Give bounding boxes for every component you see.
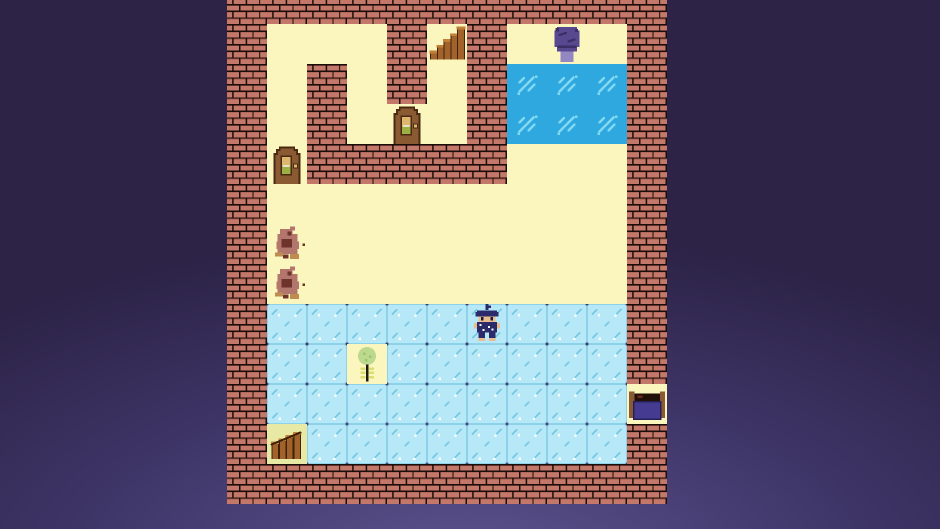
- brick-wall-tile: [467, 0, 507, 24]
- floor-tile: [427, 104, 467, 144]
- brick-wall-tile: [427, 144, 467, 184]
- floor-tile: [307, 24, 347, 64]
- brick-wall-tile: [627, 304, 667, 344]
- brick-wall-tile: [347, 0, 387, 24]
- ice-tile: [547, 384, 587, 424]
- floor-tile: [547, 144, 587, 184]
- ice-tile: [267, 304, 307, 344]
- ice-tile: [347, 304, 387, 344]
- brick-wall-tile: [267, 464, 307, 504]
- brick-wall-tile: [227, 104, 267, 144]
- water-tile: [587, 104, 627, 144]
- brick-wall-tile: [547, 0, 587, 24]
- ice-tile: [387, 384, 427, 424]
- player-character: [467, 304, 507, 344]
- water-tile: [587, 64, 627, 104]
- brick-wall-tile: [427, 464, 467, 504]
- floor-tile: [507, 24, 547, 64]
- brick-wall-tile: [227, 424, 267, 464]
- brick-wall-tile: [627, 0, 667, 24]
- floor-tile: [427, 184, 467, 224]
- brick-wall-tile: [467, 24, 507, 64]
- floor-tile: [347, 24, 387, 64]
- ice-tile: [347, 424, 387, 464]
- floor-tile: [587, 144, 627, 184]
- ice-tile: [587, 384, 627, 424]
- ice-tile: [267, 384, 307, 424]
- floor-tile: [467, 224, 507, 264]
- floor-tile: [547, 224, 587, 264]
- floor-tile: [587, 264, 627, 304]
- brick-wall-tile: [627, 424, 667, 464]
- brick-wall-tile: [227, 0, 267, 24]
- brick-wall-tile: [467, 144, 507, 184]
- ice-tile: [387, 304, 427, 344]
- brick-wall-tile: [587, 0, 627, 24]
- ice-tile: [387, 344, 427, 384]
- ice-tile: [587, 344, 627, 384]
- floor-tile: [347, 224, 387, 264]
- brick-wall-tile: [227, 464, 267, 504]
- ice-tile: [427, 304, 467, 344]
- ice-tile: [467, 384, 507, 424]
- brick-wall-tile: [627, 104, 667, 144]
- floor-tile: [387, 224, 427, 264]
- wooden-staircase: [427, 24, 467, 64]
- ice-tile: [387, 424, 427, 464]
- brick-wall-tile: [627, 64, 667, 104]
- ice-tile: [507, 384, 547, 424]
- brick-wall-tile: [387, 24, 427, 64]
- floor-tile: [507, 184, 547, 224]
- brick-wall-tile: [227, 184, 267, 224]
- ice-tile: [427, 384, 467, 424]
- bed: [627, 384, 667, 424]
- floor-tile: [267, 64, 307, 104]
- floor-tile: [467, 184, 507, 224]
- brick-wall-tile: [507, 0, 547, 24]
- brick-wall-tile: [227, 224, 267, 264]
- brick-wall-tile: [627, 224, 667, 264]
- floor-tile: [267, 184, 307, 224]
- brick-wall-tile: [307, 0, 347, 24]
- ice-tile: [307, 304, 347, 344]
- brick-wall-tile: [507, 464, 547, 504]
- ice-tile: [587, 424, 627, 464]
- floor-tile: [307, 184, 347, 224]
- ice-tile: [547, 304, 587, 344]
- brick-wall-tile: [427, 0, 467, 24]
- floor-tile: [427, 264, 467, 304]
- brick-wall-tile: [307, 464, 347, 504]
- water-tile: [547, 64, 587, 104]
- brick-wall-tile: [467, 464, 507, 504]
- brick-wall-tile: [627, 464, 667, 504]
- floor-tile: [427, 64, 467, 104]
- arched-door-upper: [387, 104, 427, 144]
- floor-tile: [307, 224, 347, 264]
- floor-tile: [347, 104, 387, 144]
- ice-tile: [507, 344, 547, 384]
- floor-tile: [387, 264, 427, 304]
- brick-wall-tile: [547, 464, 587, 504]
- ice-tile: [267, 344, 307, 384]
- brown-monster-1: [270, 224, 310, 264]
- brick-wall-tile: [227, 304, 267, 344]
- brick-wall-tile: [587, 464, 627, 504]
- brick-wall-tile: [627, 344, 667, 384]
- ice-tile: [547, 344, 587, 384]
- brick-wall-tile: [267, 0, 307, 24]
- brick-wall-tile: [347, 144, 387, 184]
- floor-tile: [267, 104, 307, 144]
- floor-tile: [307, 264, 347, 304]
- brick-wall-tile: [387, 0, 427, 24]
- brick-wall-tile: [627, 24, 667, 64]
- floor-tile: [347, 264, 387, 304]
- brick-wall-tile: [387, 64, 427, 104]
- floor-tile: [347, 184, 387, 224]
- floor-tile: [547, 264, 587, 304]
- floor-tile: [507, 264, 547, 304]
- ice-tile: [427, 344, 467, 384]
- brick-wall-tile: [347, 464, 387, 504]
- game-viewport[interactable]: [227, 0, 667, 504]
- water-tile: [507, 104, 547, 144]
- ice-tile: [507, 304, 547, 344]
- brick-wall-tile: [307, 144, 347, 184]
- ice-tile: [307, 424, 347, 464]
- floor-tile: [507, 144, 547, 184]
- brick-wall-tile: [227, 144, 267, 184]
- brick-wall-tile: [227, 64, 267, 104]
- wooden-gate: [267, 424, 307, 464]
- brick-wall-tile: [227, 344, 267, 384]
- floor-tile: [587, 24, 627, 64]
- brick-wall-tile: [227, 24, 267, 64]
- brick-wall-tile: [227, 264, 267, 304]
- floor-tile: [267, 24, 307, 64]
- brick-wall-tile: [307, 104, 347, 144]
- floor-tile: [427, 224, 467, 264]
- ice-tile: [507, 424, 547, 464]
- game-screen: [0, 0, 940, 529]
- floor-tile: [387, 184, 427, 224]
- brick-wall-tile: [307, 64, 347, 104]
- brick-wall-tile: [627, 264, 667, 304]
- floor-tile: [347, 64, 387, 104]
- floor-tile: [507, 224, 547, 264]
- brick-wall-tile: [467, 64, 507, 104]
- floor-tile: [547, 184, 587, 224]
- ice-tile: [307, 344, 347, 384]
- brick-wall-tile: [387, 144, 427, 184]
- water-tile: [507, 64, 547, 104]
- brown-monster-2: [270, 264, 310, 304]
- sapling: [347, 344, 387, 384]
- brick-wall-tile: [467, 104, 507, 144]
- brick-wall-tile: [227, 384, 267, 424]
- floor-tile: [587, 184, 627, 224]
- ice-tile: [587, 304, 627, 344]
- water-tile: [547, 104, 587, 144]
- brick-wall-tile: [627, 144, 667, 184]
- floor-tile: [467, 264, 507, 304]
- ice-tile: [547, 424, 587, 464]
- brick-wall-tile: [627, 184, 667, 224]
- arched-door-left: [267, 144, 307, 184]
- ice-tile: [467, 424, 507, 464]
- ice-tile: [347, 384, 387, 424]
- purple-slime: [547, 24, 587, 64]
- floor-tile: [587, 224, 627, 264]
- brick-wall-tile: [387, 464, 427, 504]
- ice-tile: [307, 384, 347, 424]
- ice-tile: [467, 344, 507, 384]
- ice-tile: [427, 424, 467, 464]
